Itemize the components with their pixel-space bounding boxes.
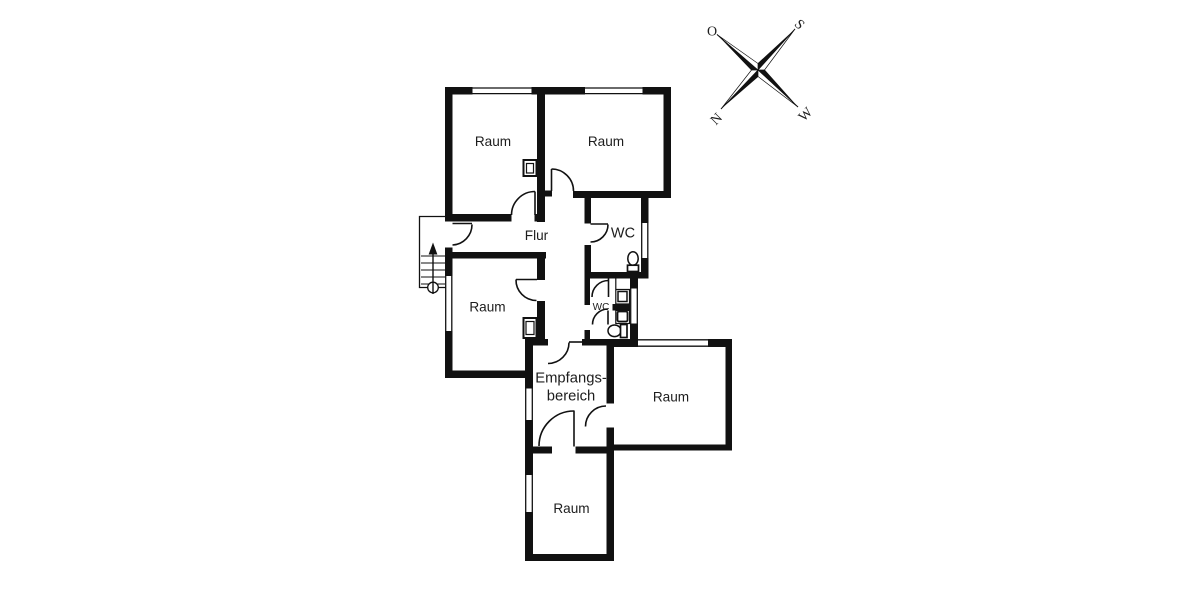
svg-text:O: O: [707, 25, 717, 40]
svg-text:Raum: Raum: [653, 390, 689, 405]
svg-text:Raum: Raum: [588, 134, 624, 149]
svg-text:Raum: Raum: [553, 501, 589, 516]
svg-text:Raum: Raum: [469, 300, 505, 315]
svg-text:bereich: bereich: [547, 389, 596, 405]
svg-text:Flur: Flur: [525, 228, 549, 243]
svg-text:WC: WC: [611, 226, 635, 242]
svg-text:Empfangs-: Empfangs-: [535, 371, 607, 387]
svg-text:Raum: Raum: [475, 134, 511, 149]
